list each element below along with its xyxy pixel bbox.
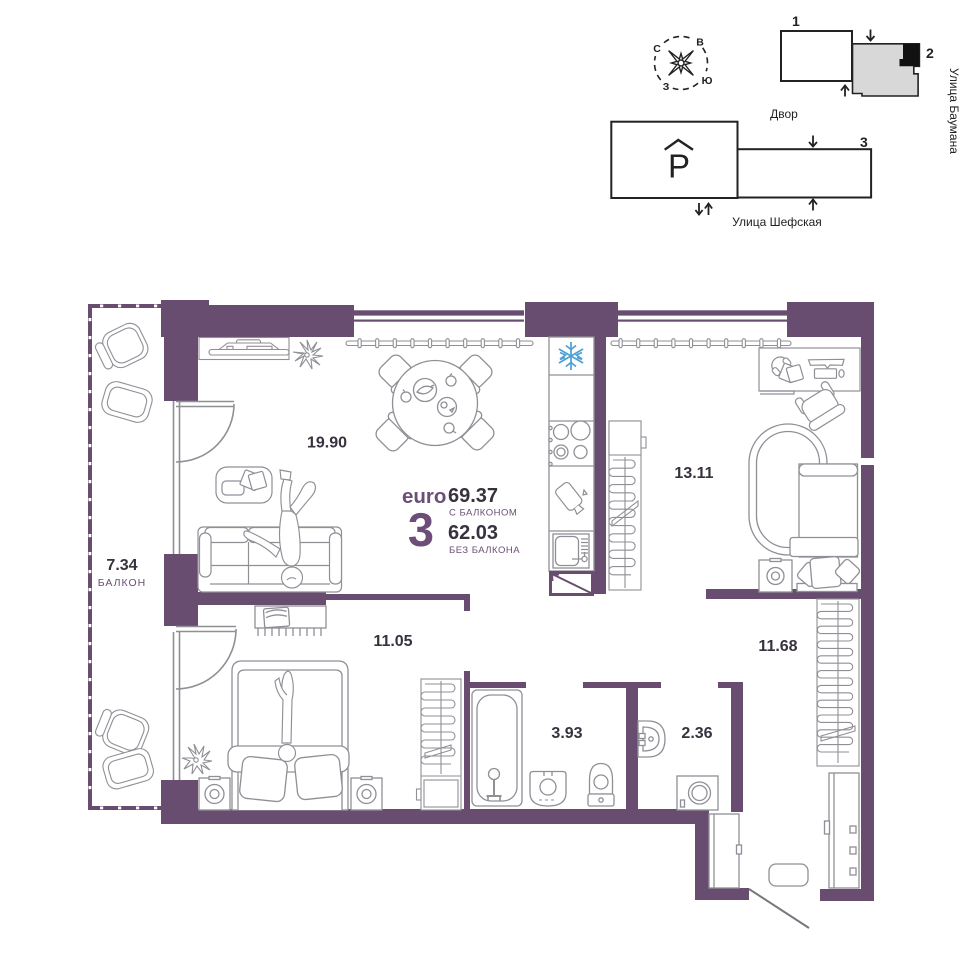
svg-text:3: 3 [860,134,868,150]
svg-text:Улица Баумана: Улица Баумана [947,68,960,154]
svg-text:Улица Шефская: Улица Шефская [732,215,822,229]
svg-text:З: З [663,81,670,93]
svg-text:Двор: Двор [770,107,798,121]
svg-text:7.34: 7.34 [106,557,137,574]
svg-text:69.37: 69.37 [448,485,498,507]
svg-text:11.68: 11.68 [758,638,797,655]
svg-text:1: 1 [792,13,800,29]
svg-text:В: В [696,37,704,49]
svg-text:11.05: 11.05 [373,633,412,650]
svg-text:2: 2 [926,45,934,61]
svg-text:3: 3 [408,503,434,556]
svg-text:19.90: 19.90 [307,435,347,452]
svg-text:С БАЛКОНОМ: С БАЛКОНОМ [449,508,517,519]
svg-text:Ю: Ю [702,75,713,87]
svg-text:С: С [653,43,661,55]
svg-text:13.11: 13.11 [674,465,713,482]
svg-text:P: P [668,148,690,185]
svg-text:2.36: 2.36 [681,725,712,742]
svg-text:БАЛКОН: БАЛКОН [98,577,147,589]
svg-text:62.03: 62.03 [448,522,498,544]
svg-text:3.93: 3.93 [551,725,582,742]
svg-text:БЕЗ БАЛКОНА: БЕЗ БАЛКОНА [449,545,520,556]
